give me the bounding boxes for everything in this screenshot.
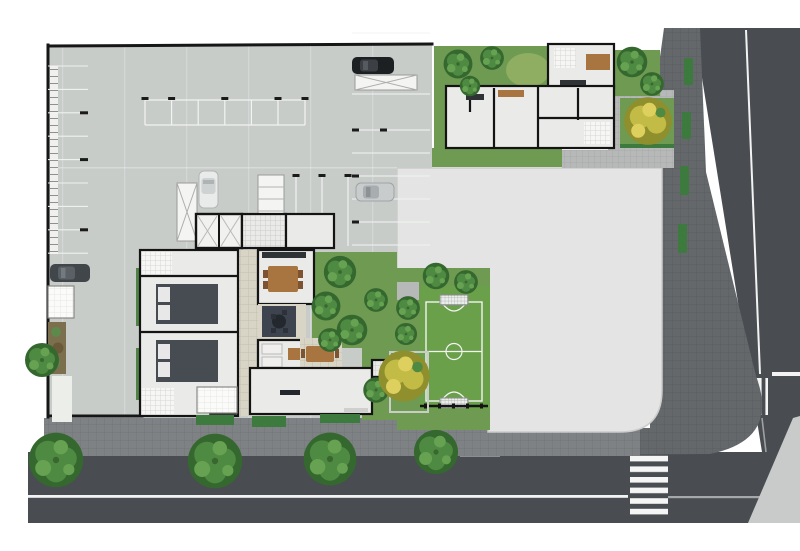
dining-table <box>263 266 303 292</box>
site-plan-canvas <box>0 0 800 551</box>
ramp-x-top <box>355 75 417 90</box>
goal-top <box>440 295 468 305</box>
garden-lightgreen-patch <box>506 53 550 87</box>
lane-marking-bottom-street <box>28 495 628 498</box>
car-white <box>199 171 218 208</box>
driveway <box>52 376 72 422</box>
car-black <box>352 57 394 74</box>
kitchen-counter <box>262 252 306 258</box>
street-tree-4 <box>414 430 458 474</box>
lobby-desk <box>280 390 300 395</box>
round-table-rug <box>262 306 296 337</box>
lobby <box>250 368 372 414</box>
core-side-rooms <box>242 214 334 248</box>
apartment-counter-dark <box>560 80 586 85</box>
street-tree-2 <box>188 434 242 488</box>
car-dark-gray <box>50 264 90 282</box>
bottom-street <box>28 452 800 523</box>
ramp-x-mid <box>177 183 197 241</box>
bedroom-1-bed <box>156 284 218 324</box>
garden-below-apartment <box>432 148 562 167</box>
slab-joint-line <box>48 167 397 168</box>
street-tree-1 <box>29 433 83 487</box>
stop-line-right-street <box>772 372 800 376</box>
street-tree-3 <box>304 433 357 486</box>
bedroom-2-bed <box>156 340 218 382</box>
apartment-counter-wood <box>498 90 524 97</box>
gate-canopy <box>48 286 74 318</box>
elevator-core <box>196 214 242 248</box>
car-silver <box>356 183 394 201</box>
site-plan-drawing <box>0 0 800 551</box>
hatched-wheel-stop-strip <box>50 66 58 254</box>
entry-canopy <box>197 387 237 413</box>
apartment-wood-deck <box>586 54 610 70</box>
lobby-steps <box>344 408 368 412</box>
